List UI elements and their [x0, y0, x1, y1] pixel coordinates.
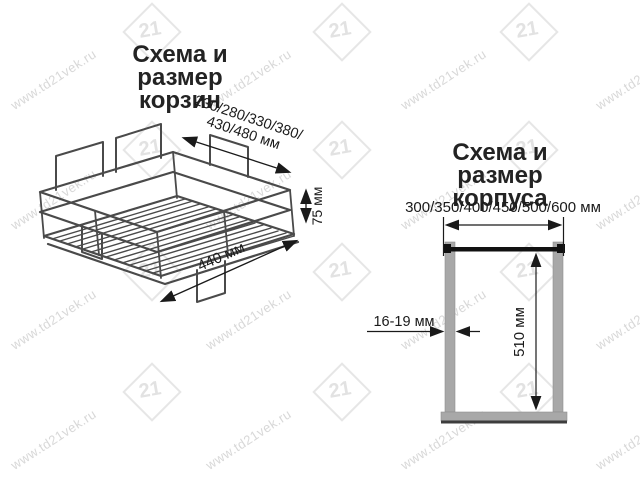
cabinet-left-wall — [445, 242, 455, 412]
diagram-canvas: 230/280/330/380/ 430/480 мм 75 мм 440 мм — [0, 0, 640, 480]
cabinet-top-rail — [444, 247, 564, 252]
cabinet-dimension-labels: 300/350/400/450/500/600 мм 510 мм 16-19 … — [373, 199, 600, 357]
basket-height-label: 75 мм — [309, 187, 325, 226]
page: www.td21vek.ru www.td21vek.ru www.td21ve… — [0, 0, 640, 480]
cabinet-bottom-edge — [441, 421, 567, 424]
cabinet-rail-left-cap — [443, 244, 451, 253]
cabinet-width-label: 300/350/400/450/500/600 мм — [405, 199, 601, 216]
cabinet-drawing — [441, 242, 567, 424]
cabinet-right-wall — [553, 242, 563, 412]
cabinet-dimensions — [367, 217, 564, 408]
basket-dimensions — [162, 138, 306, 301]
basket-depth-label: 440 мм — [195, 239, 247, 275]
basket-drawing — [40, 124, 298, 302]
cabinet-bottom-panel — [441, 412, 567, 421]
cabinet-thickness-label: 16-19 мм — [373, 314, 434, 330]
basket-gallery-loops — [56, 124, 248, 190]
cabinet-height-label: 510 мм — [511, 307, 528, 357]
